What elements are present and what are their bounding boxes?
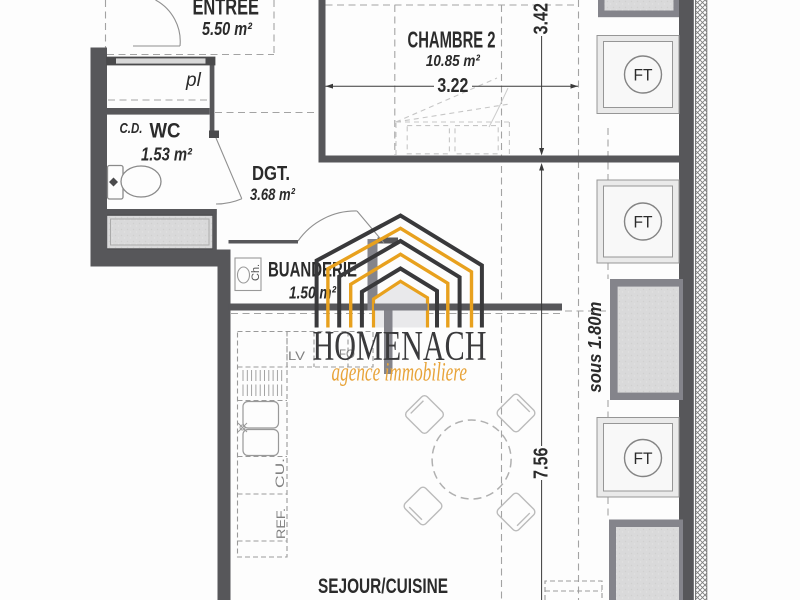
- svg-text:LV: LV: [288, 349, 305, 363]
- svg-text:1.53 m²: 1.53 m²: [141, 145, 193, 165]
- svg-text:ENTREE: ENTREE: [193, 0, 260, 20]
- svg-text:10.85 m²: 10.85 m²: [426, 53, 481, 70]
- svg-text:3.22: 3.22: [437, 75, 468, 97]
- svg-text:FT: FT: [634, 450, 653, 468]
- svg-text:C.D.: C.D.: [120, 120, 143, 137]
- svg-text:1.50 m²: 1.50 m²: [289, 283, 337, 303]
- svg-text:CHAMBRE 2: CHAMBRE 2: [408, 27, 496, 53]
- svg-text:FT: FT: [634, 214, 653, 232]
- svg-text:sous 1.80m: sous 1.80m: [585, 302, 605, 393]
- svg-text:SEJOUR/CUISINE: SEJOUR/CUISINE: [318, 574, 448, 598]
- svg-text:FT: FT: [634, 67, 653, 85]
- svg-text:7.56: 7.56: [531, 448, 553, 480]
- svg-text:CU.: CU.: [273, 458, 287, 488]
- svg-text:Ch.: Ch.: [250, 264, 262, 281]
- svg-text:3.42: 3.42: [531, 3, 553, 35]
- svg-text:DGT.: DGT.: [252, 163, 290, 185]
- svg-text:pl: pl: [185, 70, 202, 91]
- svg-text:5.50 m²: 5.50 m²: [202, 19, 253, 39]
- svg-text:WC: WC: [150, 120, 181, 143]
- svg-text:REF.: REF.: [274, 508, 288, 539]
- svg-text:agence immobiliere: agence immobiliere: [332, 358, 468, 387]
- svg-text:3.68 m²: 3.68 m²: [250, 185, 296, 204]
